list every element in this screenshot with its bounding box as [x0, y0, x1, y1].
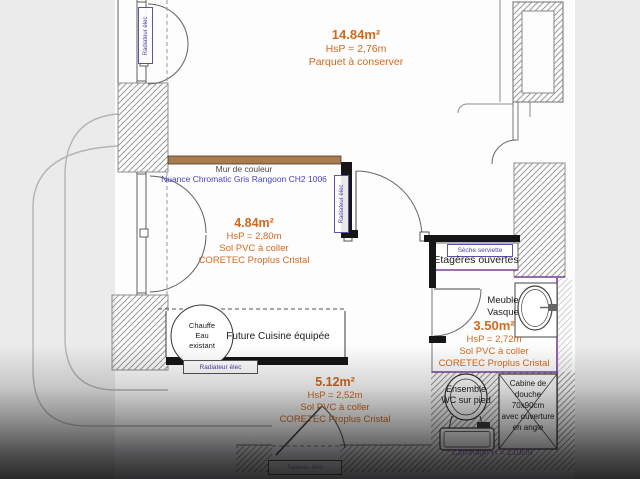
electrical-panel-label: Tableau élec	[287, 464, 324, 471]
radiator-label: Radiateur élec	[143, 16, 149, 55]
hallway-floor: Sol PVC à coller	[280, 402, 391, 414]
bathroom-height: HsP = 2,72m	[439, 334, 550, 346]
hallway-area: 5.12m²	[280, 375, 391, 390]
kitchen-height: HsP = 2,80m	[199, 231, 310, 243]
wc-label: Ensemble WC sur pied	[441, 384, 491, 406]
kitchen-floor: Sol PVC à coller	[199, 243, 310, 255]
radiator-right: Radiateur élec	[334, 175, 349, 233]
hallway-floor-brand: CORETEC Proplus Cristal	[280, 414, 391, 426]
bathroom-area: 3.50m²	[439, 318, 550, 334]
radiator-label: Radiateur élec	[339, 185, 345, 224]
radiator-label: Radiateur élec	[200, 364, 242, 371]
living-height: HsP = 2,76m	[309, 43, 404, 56]
towel-dryer-label: Sèche serviette	[458, 247, 503, 254]
colored-wall	[168, 156, 341, 164]
kitchen-floor-brand: CORETEC Proplus Cristal	[199, 255, 310, 267]
hallway-label: 5.12m² HsP = 2,52m Sol PVC à coller CORE…	[280, 375, 391, 426]
bathroom-label: 3.50m² HsP = 2,72m Sol PVC à coller CORE…	[439, 318, 550, 370]
living-area: 14.84m²	[309, 27, 404, 43]
wall-color-ref: Nuance Chromatic Gris Rangoon CH2 1006	[161, 174, 327, 184]
radiator-bottom-tag: Radiateur élec	[183, 360, 258, 374]
wall-color-title: Mur de couleur	[161, 164, 327, 174]
electrical-panel-tag: Tableau élec	[268, 460, 342, 475]
duct-shaft-icon	[513, 2, 563, 102]
future-kitchen-label: Future Cuisine équipée	[226, 331, 329, 342]
tiling-note: Carrelage H = 210cm	[451, 447, 532, 457]
kitchen-label: 4.84m² HsP = 2,80m Sol PVC à coller CORE…	[199, 216, 310, 267]
wall-color-note: Mur de couleur Nuance Chromatic Gris Ran…	[161, 164, 327, 184]
bathroom-floor-brand: CORETEC Proplus Cristal	[439, 358, 550, 370]
water-heater-label: Chauffe Eau existant	[189, 321, 215, 351]
kitchen-area: 4.84m²	[199, 216, 310, 231]
shelves-label: Etagères ouvertes	[433, 254, 518, 266]
bathroom-floor: Sol PVC à coller	[439, 346, 550, 358]
floor-plan-screenshot: 14.84m² HsP = 2,76m Parquet à conserver …	[0, 0, 640, 479]
shower-cabin-label: Cabine de douche 70x90cm avec ouverture …	[502, 378, 555, 433]
vanity-label: Meuble Vasque	[487, 295, 519, 319]
living-floor-note: Parquet à conserver	[309, 56, 404, 69]
radiator-top-left: Radiateur élec	[138, 7, 153, 64]
hallway-height: HsP = 2,52m	[280, 390, 391, 402]
living-room-label: 14.84m² HsP = 2,76m Parquet à conserver	[309, 27, 404, 69]
